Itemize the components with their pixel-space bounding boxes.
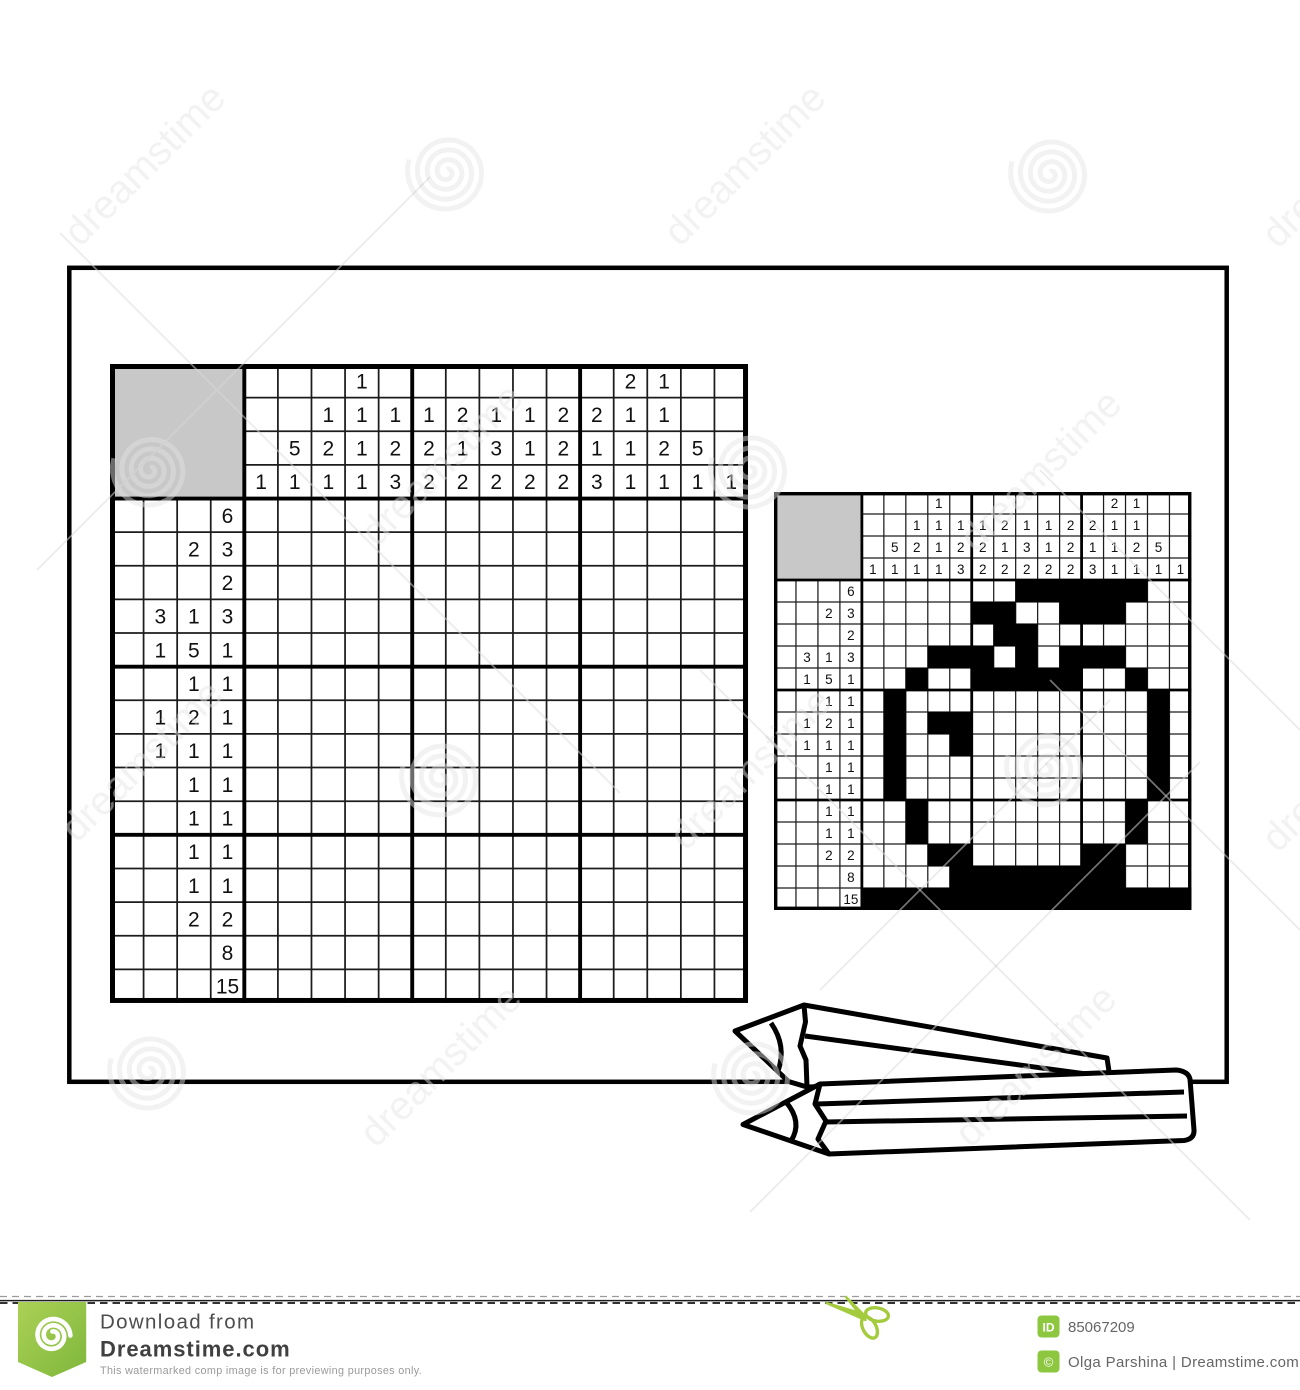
- svg-text:1: 1: [188, 841, 200, 864]
- svg-text:1: 1: [658, 404, 670, 427]
- svg-text:85067209: 85067209: [1068, 1319, 1135, 1336]
- svg-text:This watermarked comp image is: This watermarked comp image is for previ…: [100, 1365, 422, 1377]
- svg-text:3: 3: [222, 606, 234, 629]
- svg-text:5: 5: [692, 438, 704, 461]
- svg-text:1: 1: [1045, 540, 1053, 555]
- svg-text:2: 2: [490, 471, 502, 494]
- svg-text:1: 1: [935, 562, 943, 577]
- svg-text:3: 3: [591, 471, 603, 494]
- svg-text:2: 2: [322, 438, 334, 461]
- svg-text:1: 1: [847, 716, 855, 731]
- svg-text:3: 3: [847, 650, 855, 665]
- svg-text:1: 1: [1111, 518, 1119, 533]
- svg-text:1: 1: [935, 496, 943, 511]
- svg-text:1: 1: [825, 760, 833, 775]
- svg-text:1: 1: [222, 673, 234, 696]
- svg-text:1: 1: [1177, 562, 1185, 577]
- svg-text:1: 1: [625, 438, 637, 461]
- svg-text:1: 1: [255, 471, 267, 494]
- svg-text:8: 8: [847, 870, 855, 885]
- svg-text:3: 3: [155, 606, 167, 629]
- svg-text:1: 1: [1001, 540, 1009, 555]
- svg-text:ID: ID: [1043, 1321, 1055, 1335]
- svg-text:2: 2: [557, 438, 569, 461]
- svg-text:5: 5: [188, 639, 200, 662]
- svg-text:5: 5: [1155, 540, 1163, 555]
- svg-text:1: 1: [356, 471, 368, 494]
- svg-text:2: 2: [1045, 562, 1053, 577]
- svg-text:2: 2: [524, 471, 536, 494]
- svg-text:1: 1: [188, 875, 200, 898]
- svg-text:2: 2: [188, 908, 200, 931]
- svg-text:1: 1: [222, 740, 234, 763]
- svg-text:2: 2: [1023, 562, 1031, 577]
- svg-text:1: 1: [869, 562, 877, 577]
- svg-text:1: 1: [847, 672, 855, 687]
- svg-text:2: 2: [1067, 562, 1075, 577]
- svg-text:2: 2: [1111, 496, 1119, 511]
- svg-text:1: 1: [847, 826, 855, 841]
- svg-text:15: 15: [216, 976, 239, 999]
- svg-text:1: 1: [188, 606, 200, 629]
- svg-text:1: 1: [692, 471, 704, 494]
- svg-text:2: 2: [188, 539, 200, 562]
- svg-text:5: 5: [891, 540, 899, 555]
- svg-text:2: 2: [222, 572, 234, 595]
- svg-text:1: 1: [913, 518, 921, 533]
- svg-text:2: 2: [847, 628, 855, 643]
- svg-text:1: 1: [222, 875, 234, 898]
- svg-text:1: 1: [825, 738, 833, 753]
- svg-text:1: 1: [356, 370, 368, 393]
- svg-text:1: 1: [1133, 496, 1141, 511]
- svg-text:2: 2: [979, 562, 987, 577]
- svg-text:2: 2: [390, 438, 402, 461]
- svg-text:1: 1: [658, 471, 670, 494]
- svg-text:1: 1: [625, 471, 637, 494]
- svg-text:1: 1: [847, 804, 855, 819]
- svg-text:15: 15: [843, 892, 858, 907]
- svg-text:3: 3: [803, 650, 811, 665]
- svg-text:1: 1: [847, 782, 855, 797]
- svg-text:1: 1: [935, 518, 943, 533]
- svg-text:1: 1: [825, 826, 833, 841]
- svg-text:1: 1: [1089, 540, 1097, 555]
- svg-text:1: 1: [847, 694, 855, 709]
- svg-text:3: 3: [1023, 540, 1031, 555]
- svg-text:3: 3: [957, 562, 965, 577]
- svg-text:1: 1: [1045, 518, 1053, 533]
- svg-text:1: 1: [1023, 518, 1031, 533]
- svg-text:1: 1: [1155, 562, 1163, 577]
- svg-text:2: 2: [222, 908, 234, 931]
- svg-text:Download from: Download from: [100, 1311, 255, 1334]
- svg-text:2: 2: [825, 606, 833, 621]
- svg-text:1: 1: [356, 438, 368, 461]
- svg-text:2: 2: [847, 848, 855, 863]
- svg-text:6: 6: [222, 505, 234, 528]
- svg-text:Olga Parshina | Dreamstime.com: Olga Parshina | Dreamstime.com: [1068, 1354, 1299, 1371]
- svg-text:1: 1: [322, 471, 334, 494]
- svg-text:2: 2: [825, 848, 833, 863]
- svg-text:2: 2: [658, 438, 670, 461]
- svg-text:2: 2: [591, 404, 603, 427]
- svg-text:1: 1: [188, 774, 200, 797]
- svg-text:5: 5: [289, 438, 301, 461]
- svg-text:1: 1: [390, 404, 402, 427]
- svg-text:3: 3: [847, 606, 855, 621]
- svg-text:2: 2: [1133, 540, 1141, 555]
- svg-text:6: 6: [847, 584, 855, 599]
- svg-text:1: 1: [289, 471, 301, 494]
- svg-text:1: 1: [1111, 562, 1119, 577]
- svg-text:2: 2: [913, 540, 921, 555]
- svg-text:1: 1: [222, 774, 234, 797]
- svg-text:1: 1: [658, 370, 670, 393]
- svg-text:2: 2: [1067, 540, 1075, 555]
- svg-text:2: 2: [557, 471, 569, 494]
- svg-text:1: 1: [1133, 518, 1141, 533]
- svg-text:1: 1: [847, 738, 855, 753]
- svg-text:3: 3: [1089, 562, 1097, 577]
- svg-text:1: 1: [625, 404, 637, 427]
- svg-text:1: 1: [825, 650, 833, 665]
- svg-text:8: 8: [222, 942, 234, 965]
- svg-text:1: 1: [891, 562, 899, 577]
- svg-text:1: 1: [222, 639, 234, 662]
- svg-text:©: ©: [1044, 1355, 1054, 1370]
- svg-text:2: 2: [1067, 518, 1075, 533]
- svg-text:1: 1: [423, 404, 435, 427]
- svg-text:2: 2: [1001, 562, 1009, 577]
- svg-text:1: 1: [524, 438, 536, 461]
- svg-text:1: 1: [847, 760, 855, 775]
- svg-text:Dreamstime.com: Dreamstime.com: [100, 1337, 291, 1362]
- svg-text:1: 1: [825, 782, 833, 797]
- svg-text:1: 1: [935, 540, 943, 555]
- svg-text:2: 2: [557, 404, 569, 427]
- svg-text:5: 5: [825, 672, 833, 687]
- svg-text:1: 1: [222, 808, 234, 831]
- svg-text:1: 1: [591, 438, 603, 461]
- svg-text:1: 1: [155, 639, 167, 662]
- svg-text:1: 1: [825, 804, 833, 819]
- svg-text:1: 1: [913, 562, 921, 577]
- svg-text:1: 1: [222, 841, 234, 864]
- svg-text:1: 1: [188, 808, 200, 831]
- svg-text:3: 3: [222, 539, 234, 562]
- svg-text:2: 2: [625, 370, 637, 393]
- svg-text:1: 1: [356, 404, 368, 427]
- svg-text:1: 1: [322, 404, 334, 427]
